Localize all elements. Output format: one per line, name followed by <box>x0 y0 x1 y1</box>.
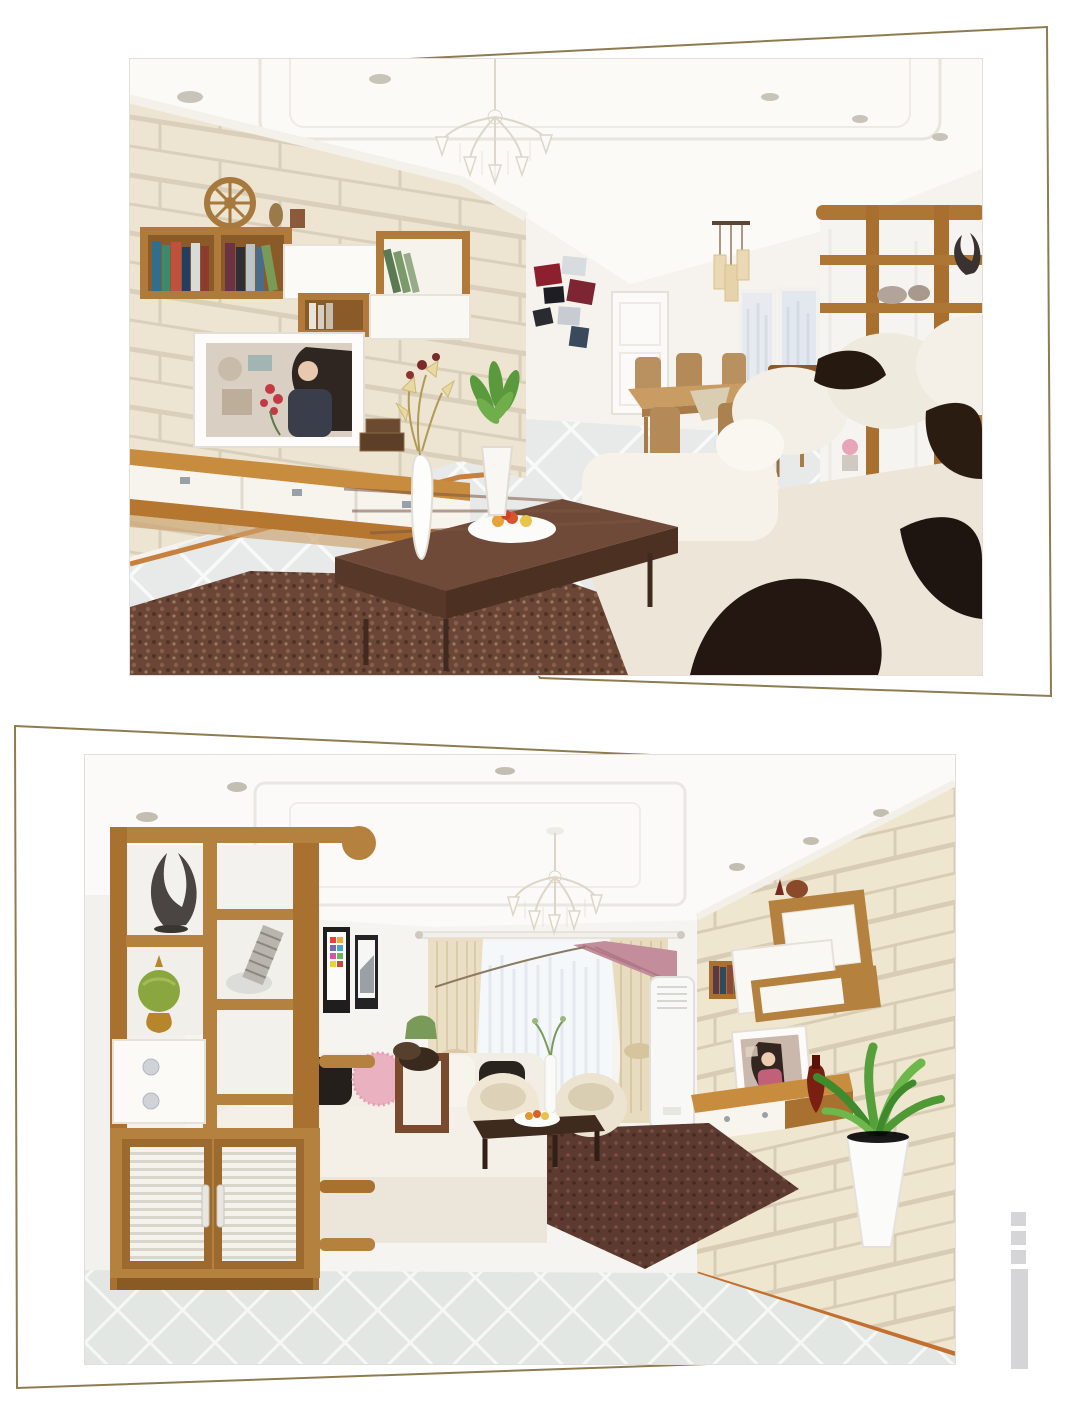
small-vase <box>269 203 283 227</box>
white-drawer-box <box>113 1040 205 1123</box>
tv <box>194 333 364 447</box>
brand-watermark <box>1011 1212 1028 1369</box>
watermark-bar <box>1011 1269 1028 1369</box>
watermark-square-1 <box>1011 1212 1026 1226</box>
photo-frame <box>290 209 305 228</box>
carved-wheel-ornament <box>207 180 253 226</box>
bowl-ornament <box>786 880 808 898</box>
interior-photo-bottom[interactable] <box>85 755 955 1364</box>
watermark-square-2 <box>1011 1231 1026 1245</box>
louver-cabinet <box>110 1128 320 1290</box>
ac-unit <box>650 977 694 1129</box>
article-page <box>0 0 1080 1416</box>
watermark-square-3 <box>1011 1250 1026 1264</box>
interior-photo-top[interactable] <box>130 59 982 675</box>
